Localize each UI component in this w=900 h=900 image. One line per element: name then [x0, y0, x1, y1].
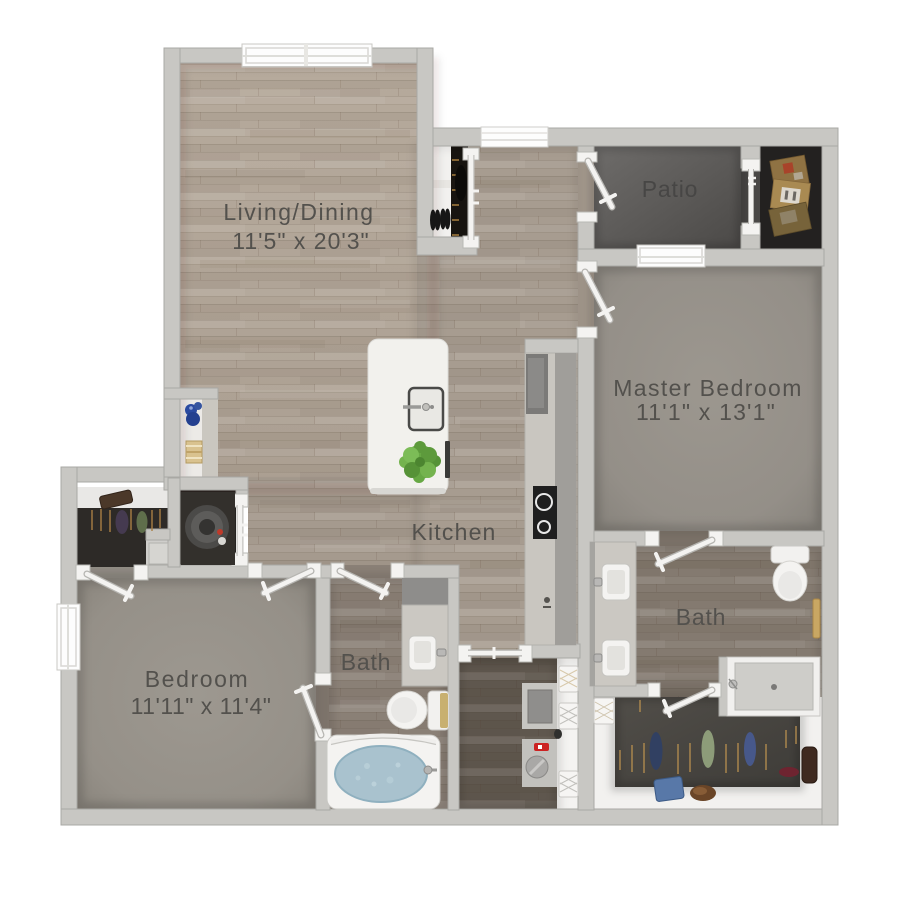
svg-text:Bedroom: Bedroom	[145, 666, 250, 692]
svg-text:11'11" x 11'4": 11'11" x 11'4"	[131, 693, 272, 719]
svg-text:Bath: Bath	[676, 604, 727, 630]
svg-text:Bath: Bath	[341, 649, 392, 675]
svg-text:Master Bedroom: Master Bedroom	[613, 375, 803, 401]
svg-text:Living/Dining: Living/Dining	[223, 199, 374, 225]
svg-text:Patio: Patio	[642, 176, 698, 202]
svg-text:Kitchen: Kitchen	[411, 519, 496, 545]
svg-text:11'5" x 20'3": 11'5" x 20'3"	[232, 228, 369, 254]
svg-text:11'1" x 13'1": 11'1" x 13'1"	[636, 399, 776, 425]
